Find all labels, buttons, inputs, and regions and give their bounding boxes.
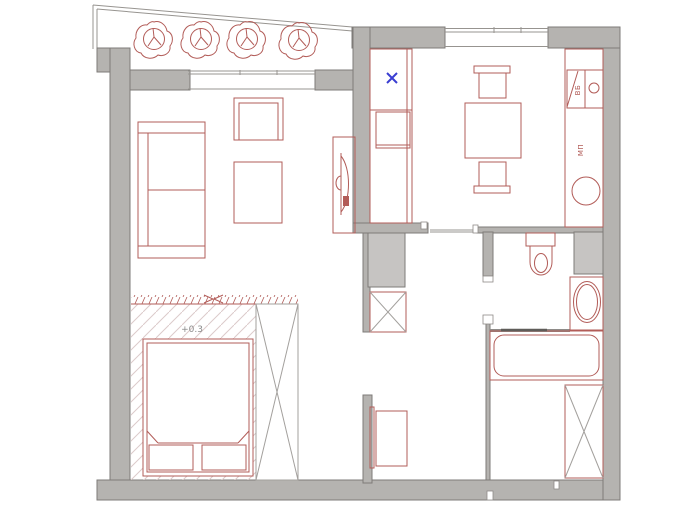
- balcony-plants: [134, 22, 317, 60]
- tv-base: [343, 196, 349, 206]
- wall-bathroom-left-lower: [486, 323, 490, 480]
- jamb-hall-opening: [421, 222, 427, 229]
- sofa: [138, 122, 205, 258]
- kitchen-counter-left: [370, 49, 412, 223]
- dining-table: [465, 103, 521, 158]
- window-balcony: [188, 70, 315, 89]
- kitchen-furniture: ВБ МП: [370, 49, 603, 227]
- wardrobe-bottom-right-crossbox: [565, 385, 603, 478]
- wardrobe-hall-crossbox: [370, 292, 406, 332]
- wall-bathroom-left-upper: [483, 232, 493, 276]
- floor-plan-drawing: ВБ МП: [0, 0, 700, 507]
- armchair: [234, 98, 283, 140]
- wall-hall-top: [353, 223, 428, 233]
- dining-chair-bottom: [474, 162, 510, 193]
- wall-top-kitchen-right: [548, 27, 620, 48]
- tv-unit: [333, 137, 355, 233]
- window-kitchen: [445, 27, 548, 47]
- hob-cross-icon: [387, 73, 397, 83]
- label-mp: МП: [577, 144, 585, 156]
- wall-bottom: [97, 480, 620, 500]
- kitchen-sink: [572, 177, 600, 205]
- coffee-table: [234, 162, 282, 223]
- vent-shaft-kitchen: [368, 233, 405, 287]
- wall-right: [603, 27, 620, 500]
- jamb-bathroom-wall-left: [473, 225, 478, 233]
- vanity-sink: [570, 277, 603, 330]
- label-vb: ВБ: [574, 85, 582, 96]
- floor-plan-canvas: ВБ МП: [0, 0, 700, 507]
- jamb-bathroom-door-top: [483, 276, 493, 282]
- wall-left: [110, 48, 130, 482]
- elevation-label: +0.3: [181, 325, 203, 335]
- vent-shaft-bathroom: [574, 232, 603, 274]
- wardrobe-bedroom-crossbox: [256, 304, 298, 480]
- jamb-bathroom-door-bottom: [483, 315, 493, 324]
- wall-balcony-parapet-left: [130, 70, 190, 90]
- toilet: [526, 233, 555, 275]
- jamb-bottom-wall-right: [554, 481, 559, 489]
- wall-hall-stub: [363, 395, 372, 483]
- living-room-furniture: [138, 98, 355, 258]
- jamb-bottom-wall-left: [487, 491, 493, 500]
- wall-living-kitchen-divider: [353, 27, 370, 233]
- bedroom: +0.3: [131, 295, 298, 480]
- bed: [143, 339, 253, 476]
- balcony: [93, 5, 364, 59]
- bathtub: [490, 330, 603, 380]
- kitchen-counter-right: ВБ МП: [565, 49, 603, 227]
- dining-chair-top: [474, 66, 510, 98]
- corridor-threshold-line: [430, 230, 477, 232]
- small-appliance-circle: [589, 83, 599, 93]
- hall-furniture: [370, 292, 407, 468]
- hall-cabinet: [370, 407, 407, 468]
